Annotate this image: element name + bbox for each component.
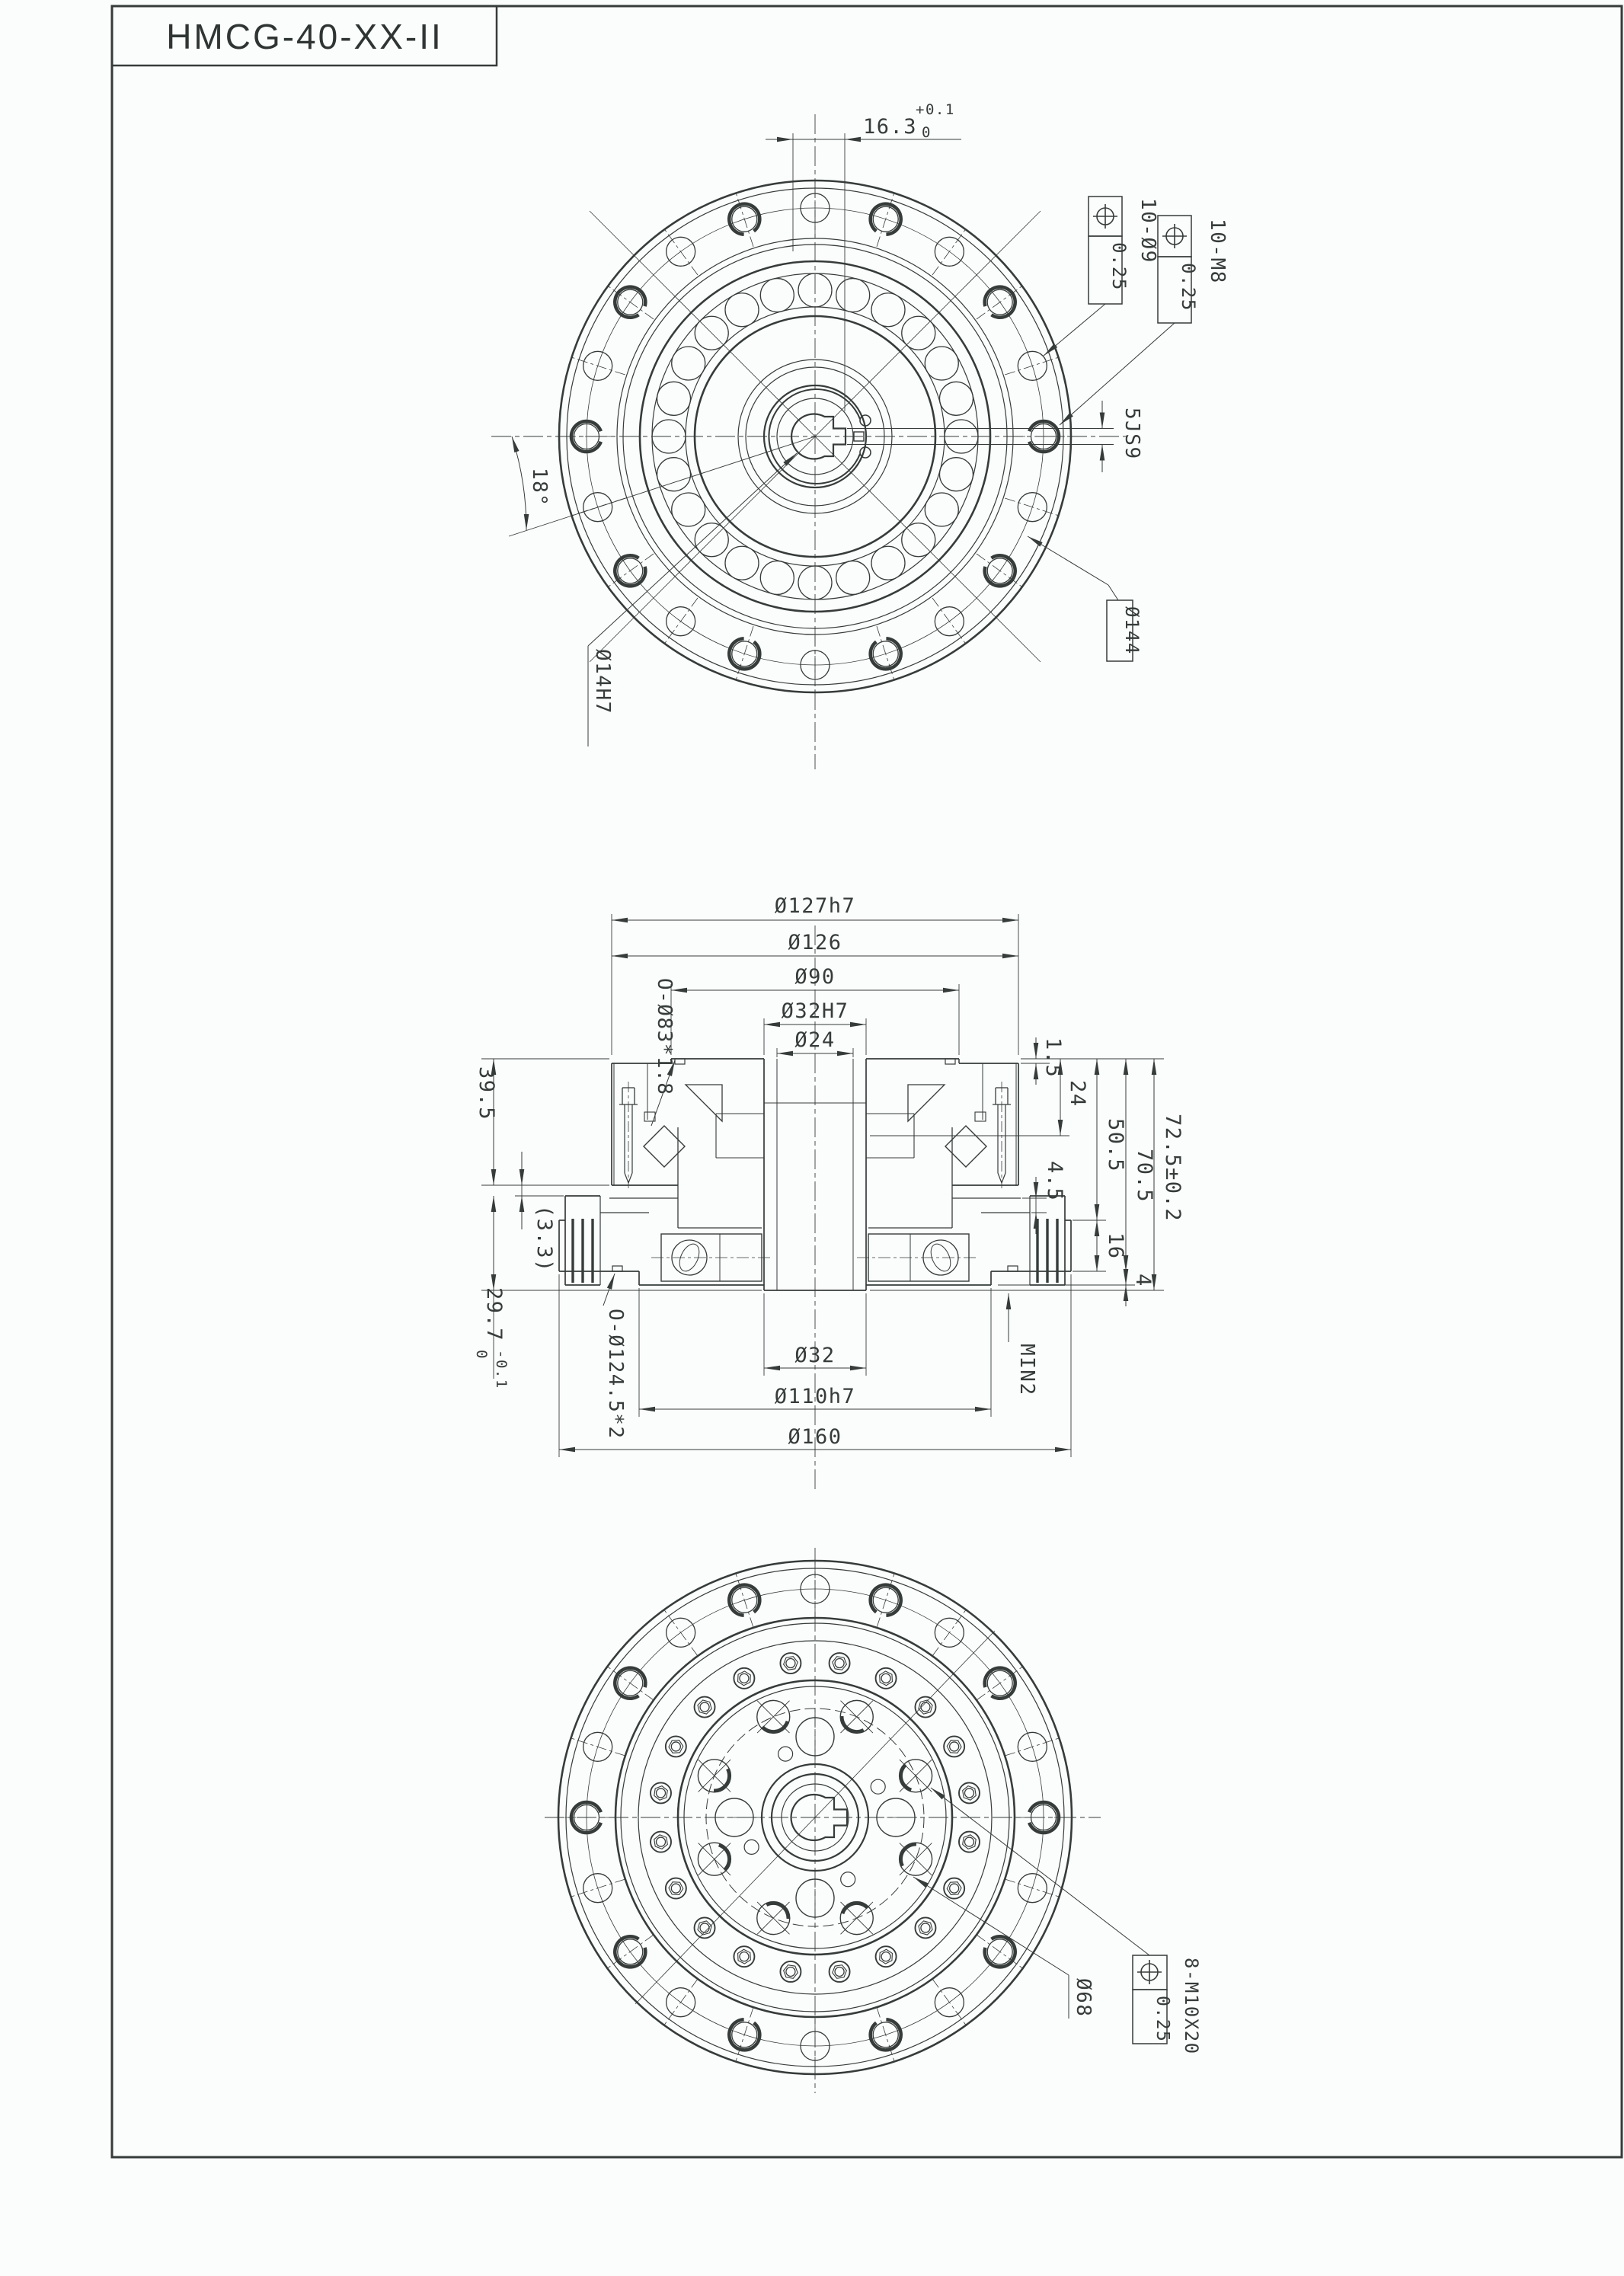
fcf-m8-tol: 0.25 <box>1178 263 1199 312</box>
dim-16-3-tol-lower: 0 <box>922 124 932 141</box>
label-bc-68: Ø68 <box>1072 1978 1095 2017</box>
dim-39-5: 39.5 <box>475 1066 498 1120</box>
section-screw-left <box>619 1082 638 1188</box>
dim-32-dia: Ø32 <box>794 1344 835 1367</box>
label-oring-bottom: O-Ø124.5*2 <box>604 1309 627 1440</box>
dim-32h7: Ø32H7 <box>782 999 849 1023</box>
label-bore: Ø14H7 <box>591 649 614 714</box>
bearing-left <box>651 1234 773 1281</box>
dim-4-5: 4.5 <box>1043 1161 1066 1201</box>
dim-3-3: (3.3) <box>532 1205 556 1273</box>
dim-18-deg: 18° <box>528 468 551 507</box>
dim-160: Ø160 <box>788 1425 842 1449</box>
dim-24-dia: Ø24 <box>794 1028 835 1052</box>
dim-126: Ø126 <box>788 931 842 954</box>
dim-16: 16 <box>1104 1232 1127 1260</box>
dim-1-5: 1.5 <box>1041 1037 1065 1078</box>
dim-70-5: 70.5 <box>1133 1149 1156 1203</box>
label-10-d9: 10-Ø9 <box>1136 198 1159 264</box>
dim-4: 4 <box>1131 1274 1155 1287</box>
dim-72-5: 72.5±0.2 <box>1161 1114 1184 1222</box>
dim-16-3-tol-upper: +0.1 <box>916 101 955 118</box>
dim-50-5: 50.5 <box>1104 1118 1127 1172</box>
fcf-taps-m10: 0.25 8-M10X20 <box>931 1788 1202 2055</box>
fcf-d9-tol: 0.25 <box>1108 242 1130 291</box>
section-view: Ø127h7 Ø126 Ø90 Ø32H7 Ø24 O-Ø83*1.8 O-Ø1… <box>473 894 1184 1489</box>
dim-keyway-depth: 16.3 +0.1 0 <box>766 101 961 411</box>
label-10-m8: 10-M8 <box>1206 219 1229 284</box>
leader-bc-68: Ø68 <box>913 1877 1095 2019</box>
section-screw-right <box>993 1082 1011 1188</box>
fcf-holes-d9: 0.25 10-Ø9 <box>1044 197 1159 356</box>
cross-roller-left <box>644 1126 685 1167</box>
engineering-drawing: HMCG-40-XX-II <box>0 0 1624 2276</box>
dim-127h7: Ø127h7 <box>775 894 856 918</box>
section-right-dims: 1.5 24 50.5 70.5 72.5±0.2 4.5 16 4 MIN2 <box>870 1037 1184 1396</box>
dim-min2: MIN2 <box>1015 1344 1038 1396</box>
dim-24: 24 <box>1066 1080 1089 1108</box>
dim-90: Ø90 <box>794 965 835 989</box>
dim-angle-18: 18° <box>512 436 551 530</box>
label-bc-144: Ø144 <box>1121 606 1143 655</box>
leader-bore: Ø14H7 <box>588 453 797 746</box>
cross-roller-right <box>945 1126 986 1167</box>
dim-29-7: 29.7 <box>482 1287 506 1341</box>
dim-110h7: Ø110h7 <box>775 1385 856 1408</box>
bearing-right <box>857 1234 979 1281</box>
dim-5js9: 5JS9 <box>1120 408 1143 460</box>
dim-29-7-tol-dn: -0.1 <box>493 1350 510 1389</box>
drawing-sheet: HMCG-40-XX-II <box>0 0 1624 2276</box>
dim-bolt-circle-144: Ø144 <box>1028 536 1143 661</box>
oring-callouts: O-Ø83*1.8 O-Ø124.5*2 <box>603 978 676 1440</box>
label-oring-top: O-Ø83*1.8 <box>653 978 676 1095</box>
dim-29-7-tol-up: 0 <box>473 1350 490 1360</box>
top-view: 16.3 +0.1 0 5JS9 18° Ø14H7 Ø144 <box>491 101 1229 769</box>
fcf-m10-tol: 0.25 <box>1152 1996 1172 2042</box>
dim-16-3: 16.3 <box>863 115 917 139</box>
label-8-m10x20: 8-M10X20 <box>1181 1958 1202 2055</box>
drawing-title: HMCG-40-XX-II <box>166 17 443 56</box>
bottom-view: Ø68 0.25 8-M10X20 <box>545 1548 1202 2093</box>
